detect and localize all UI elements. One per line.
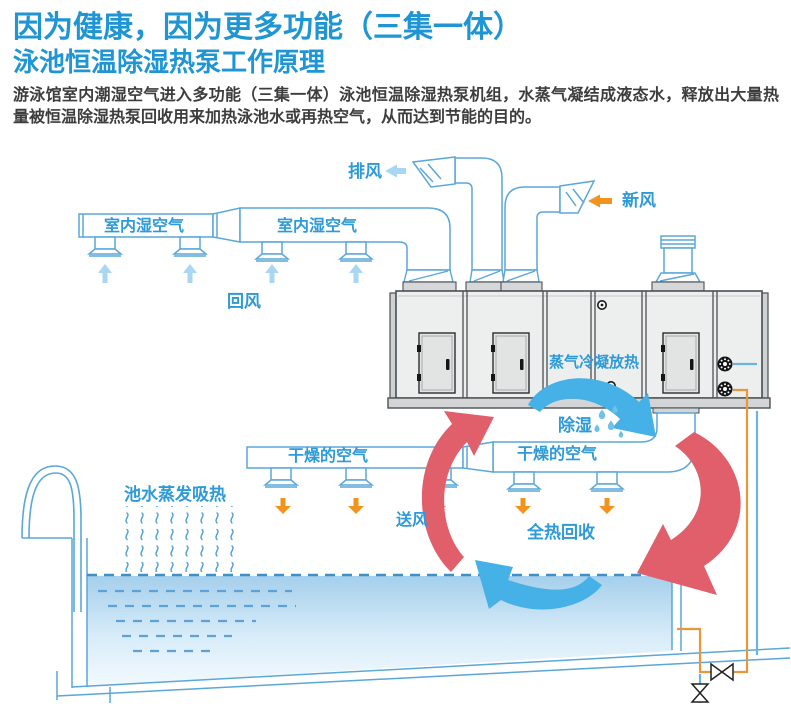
fresh-air-left-arrow-icon bbox=[588, 195, 612, 208]
supply-duct-right bbox=[493, 413, 695, 472]
evaporation-squiggles bbox=[116, 506, 240, 572]
description-paragraph: 游泳馆室内潮湿空气进入多功能（三集一体）泳池恒温除湿热泵机组，水蒸气凝结成液态水… bbox=[13, 85, 779, 129]
label-supply-air: 送风 bbox=[396, 513, 428, 529]
label-dry-air-2: 干燥的空气 bbox=[517, 447, 597, 463]
valve-icon bbox=[692, 664, 733, 702]
fresh-air-intake-hood bbox=[560, 181, 594, 213]
page-title: 因为健康，因为更多功能（三集一体） bbox=[13, 2, 523, 46]
infographic-page: 因为健康，因为更多功能（三集一体） 泳池恒温除湿热泵工作原理 游泳馆室内潮湿空气… bbox=[0, 0, 791, 704]
page-subtitle: 泳池恒温除湿热泵工作原理 bbox=[13, 42, 325, 79]
label-dry-air-1: 干燥的空气 bbox=[288, 449, 368, 465]
return-up-arrows bbox=[98, 264, 363, 283]
label-dehumidify: 除湿 bbox=[558, 417, 592, 434]
label-indoor-humid-air-2: 室内湿空气 bbox=[277, 219, 357, 235]
label-return-air: 回风 bbox=[227, 293, 261, 310]
label-fresh-air: 新风 bbox=[622, 192, 656, 209]
heat-recovery-arrow-left bbox=[422, 411, 494, 572]
label-indoor-humid-air-1: 室内湿空气 bbox=[104, 219, 184, 235]
fresh-air-duct bbox=[505, 181, 594, 270]
unit-base-rail bbox=[388, 398, 770, 408]
label-pool-evaporation: 池水蒸发吸热 bbox=[124, 486, 226, 503]
supply-down-arrows bbox=[275, 498, 615, 514]
label-exhaust-air: 排风 bbox=[348, 163, 382, 180]
exhaust-left-arrow-icon bbox=[385, 165, 406, 178]
label-steam-condensation: 蒸气冷凝放热 bbox=[549, 355, 639, 370]
roof-stack bbox=[656, 236, 700, 282]
label-total-heat-recovery: 全热回收 bbox=[527, 524, 595, 541]
